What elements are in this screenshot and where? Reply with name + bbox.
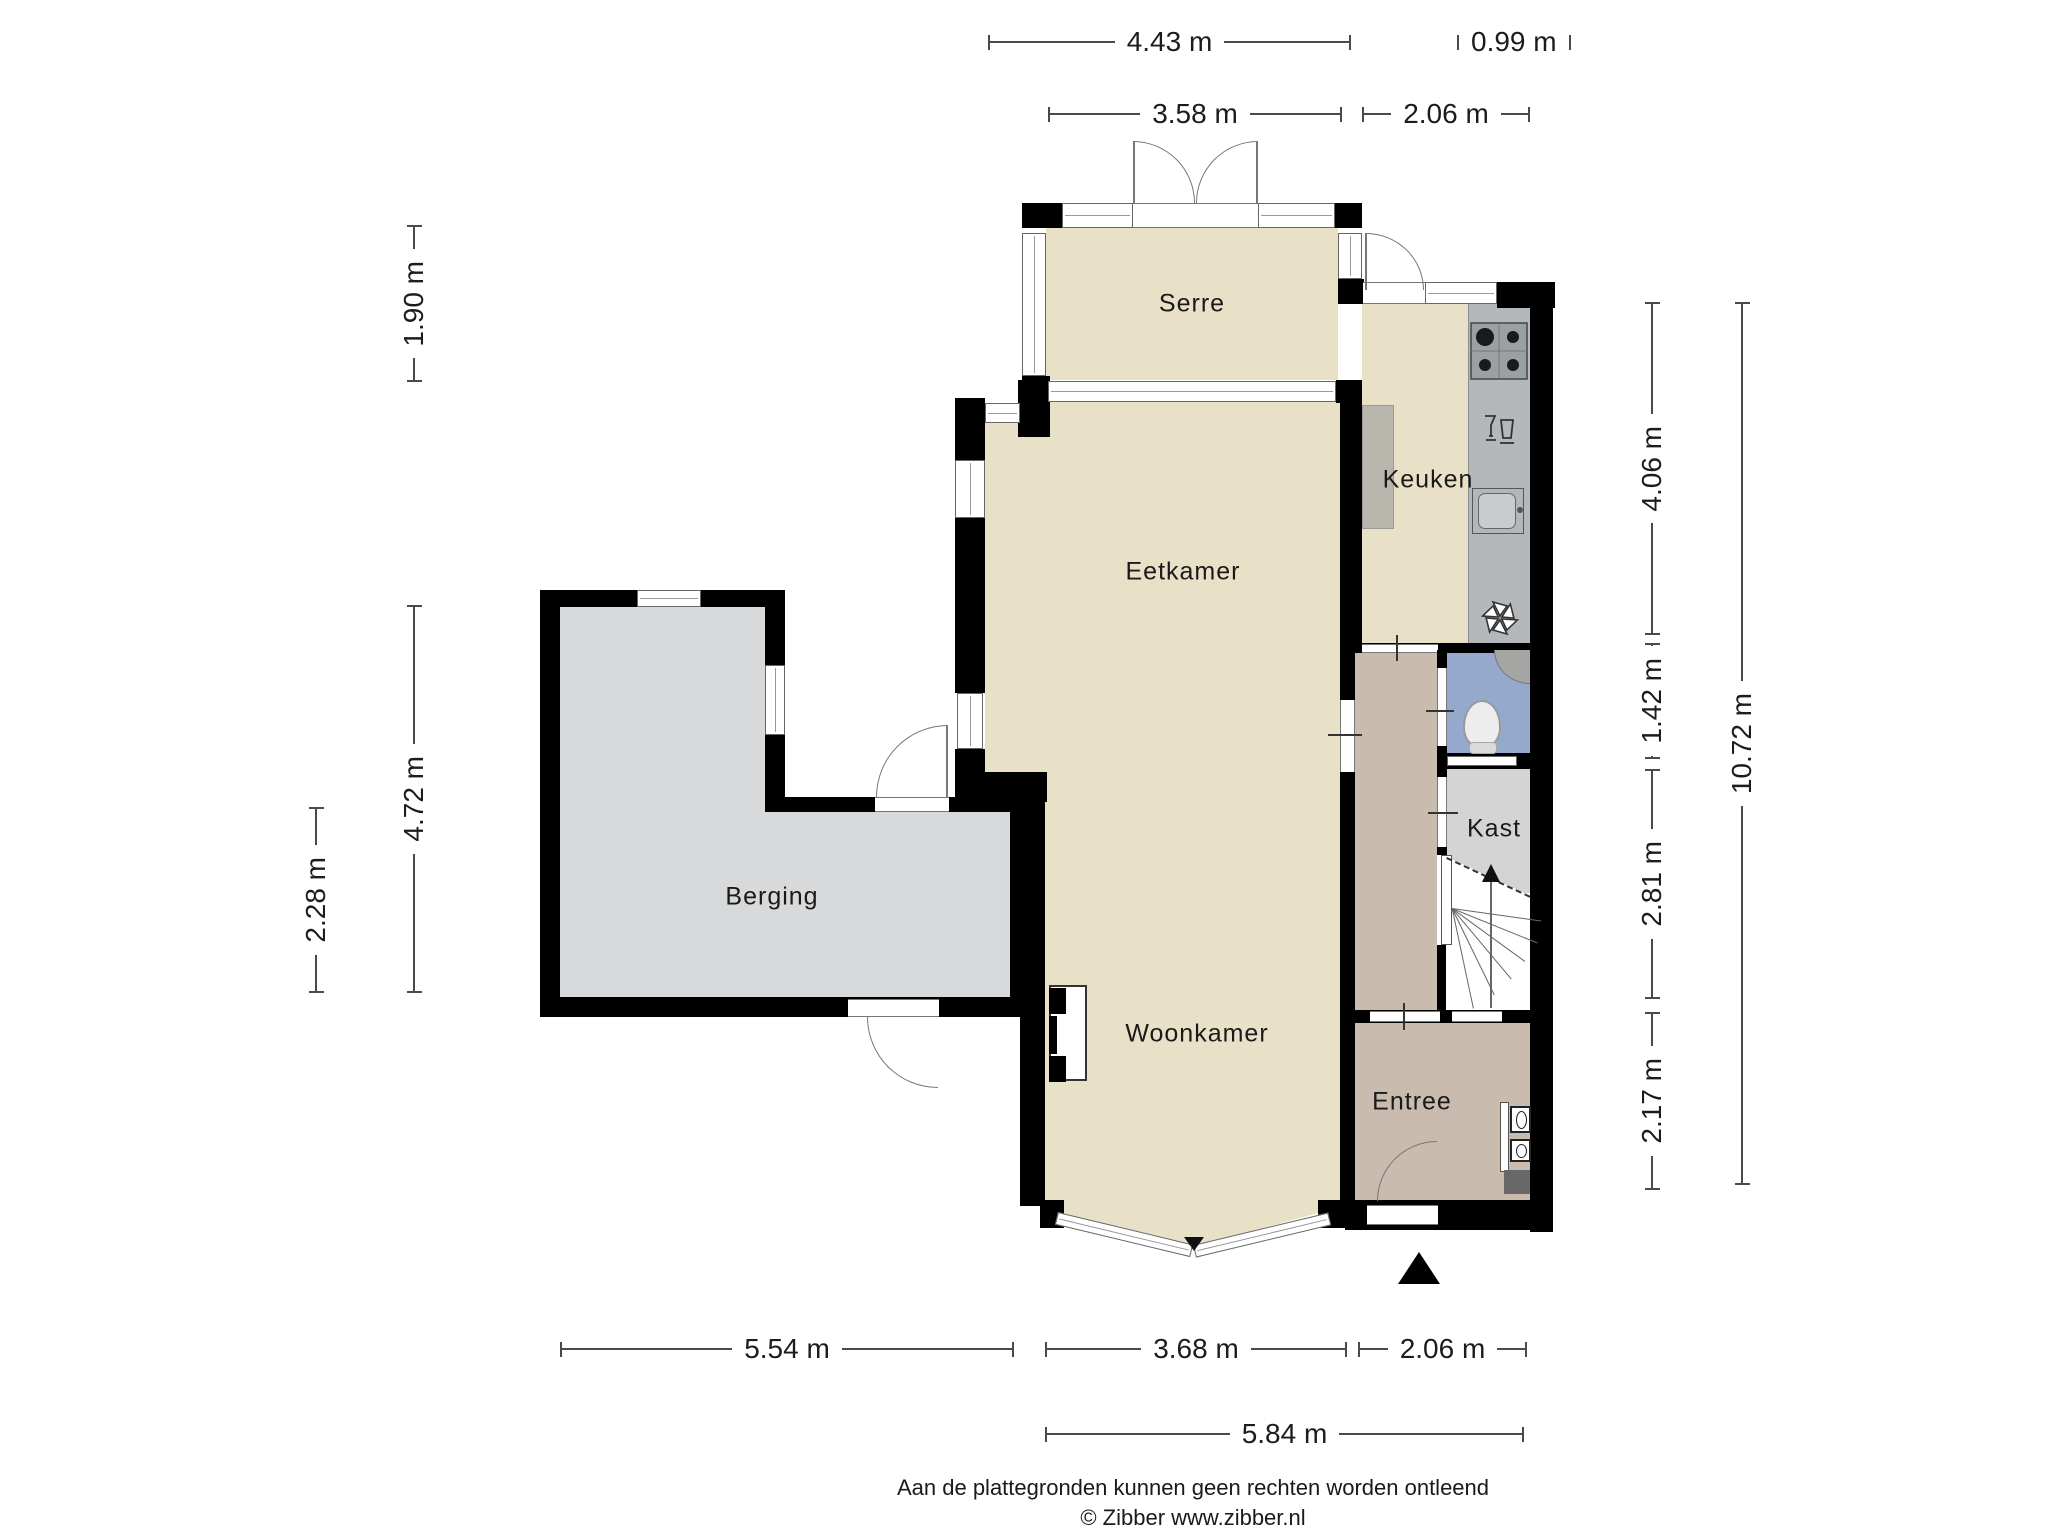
gas-meter-icon — [1510, 1139, 1531, 1162]
room-floor-woonkamer — [1045, 772, 1340, 1212]
wall — [955, 518, 985, 693]
dimension-4-43: 4.43 m — [988, 26, 1351, 58]
bay-junction-mark — [1184, 1237, 1204, 1251]
window — [1425, 282, 1497, 304]
room-floor-eetkamer — [985, 423, 1340, 774]
door-opening — [1370, 1011, 1440, 1022]
copyright-text: © Zibber www.zibber.nl — [893, 1503, 1493, 1533]
room-label-eetkamer: Eetkamer — [1126, 558, 1241, 587]
disclaimer-text: Aan de plattegronden kunnen geen rechten… — [893, 1473, 1493, 1503]
opening-mark — [1403, 1003, 1405, 1030]
dimension-5-84: 5.84 m — [1045, 1418, 1524, 1450]
room-label-kast: Kast — [1467, 815, 1521, 844]
wall — [1530, 282, 1553, 1232]
dimension-5-54: 5.54 m — [560, 1333, 1014, 1365]
door-opening — [875, 797, 949, 812]
fireplace-chimney — [1049, 1056, 1066, 1082]
stair-stringer — [1441, 855, 1452, 945]
opening-mark — [1426, 710, 1454, 712]
opening-mark — [1396, 635, 1398, 661]
door-opening — [1133, 203, 1258, 228]
dimension-2-28: 2.28 m — [300, 807, 332, 993]
wall — [1338, 279, 1364, 304]
dimension-4-72: 4.72 m — [398, 605, 430, 993]
dishwasher-icon — [1481, 412, 1517, 448]
opening-mark — [1328, 734, 1362, 736]
wall — [1022, 203, 1062, 228]
wall — [1437, 847, 1447, 855]
passage-opening — [1340, 700, 1355, 772]
stove-icon — [1470, 322, 1528, 380]
dimension-1-90: 1.90 m — [398, 225, 430, 382]
wall — [955, 749, 985, 774]
wall — [1335, 203, 1362, 228]
door-leaf — [1365, 233, 1367, 290]
dimension-2-06-bottom: 2.06 m — [1358, 1333, 1527, 1365]
door-leaf — [1133, 141, 1135, 203]
wall — [1437, 650, 1447, 668]
door-swing — [1133, 141, 1195, 203]
wall — [1437, 746, 1447, 753]
meter-niche — [1500, 1102, 1509, 1172]
wall — [1010, 812, 1030, 1017]
wall — [1340, 772, 1355, 1012]
room-floor-hal — [1355, 650, 1437, 1012]
fireplace-chimney — [1049, 988, 1066, 1014]
front-door-opening — [1367, 1205, 1438, 1225]
window — [1258, 203, 1335, 228]
window — [1048, 381, 1336, 402]
toilet-base — [1469, 742, 1497, 754]
window — [637, 590, 701, 607]
window — [985, 403, 1020, 423]
window — [1447, 756, 1517, 766]
room-floor-berging — [560, 607, 765, 997]
opening-mark — [1428, 812, 1458, 814]
wall — [955, 398, 985, 460]
dimension-0-99: 0.99 m — [1457, 26, 1539, 58]
wall — [1437, 945, 1446, 1012]
floor-plan: Serre Keuken Eetkamer Berging Kast Woonk… — [0, 0, 2048, 1536]
door-swing — [1196, 141, 1258, 203]
dimension-2-81: 2.81 m — [1636, 769, 1668, 999]
dimension-2-06-top: 2.06 m — [1362, 98, 1530, 130]
window — [955, 460, 985, 518]
room-label-woonkamer: Woonkamer — [1125, 1020, 1268, 1049]
wall — [1340, 650, 1355, 700]
passage-opening — [1362, 644, 1438, 653]
room-label-serre: Serre — [1159, 290, 1225, 319]
window — [1022, 233, 1046, 376]
fireplace-chimney — [1049, 1016, 1057, 1054]
meter-box — [1504, 1170, 1530, 1194]
entrance-arrow-icon — [1398, 1252, 1440, 1284]
window — [1062, 203, 1133, 228]
window — [765, 665, 785, 735]
stairs-threshold — [1452, 1011, 1502, 1022]
dimension-10-72: 10.72 m — [1726, 302, 1758, 1185]
wall — [540, 590, 560, 1017]
door-opening — [848, 999, 939, 1017]
ventilation-fan-icon — [1480, 598, 1520, 638]
door-swing — [867, 1017, 938, 1088]
wall — [1340, 1012, 1355, 1200]
door-swing — [1366, 233, 1424, 290]
room-label-entree: Entree — [1372, 1088, 1452, 1117]
room-label-keuken: Keuken — [1383, 466, 1474, 495]
door-opening — [1437, 668, 1447, 746]
window — [1338, 233, 1362, 279]
room-floor-eetkamer — [1018, 402, 1340, 425]
wall — [1437, 769, 1447, 777]
wall — [540, 997, 1030, 1017]
room-label-berging: Berging — [725, 883, 818, 912]
stairs-direction-arrow-icon — [1482, 864, 1500, 882]
door-leaf — [1256, 141, 1258, 203]
dimension-2-17: 2.17 m — [1636, 1012, 1668, 1190]
electricity-meter-icon — [1510, 1106, 1531, 1133]
wall — [1018, 380, 1048, 437]
door-leaf — [946, 725, 948, 797]
dimension-1-42: 1.42 m — [1636, 643, 1668, 759]
dimension-3-68: 3.68 m — [1045, 1333, 1347, 1365]
dimension-3-58: 3.58 m — [1048, 98, 1342, 130]
wall — [1340, 380, 1362, 643]
window — [957, 693, 983, 749]
footer: Aan de plattegronden kunnen geen rechten… — [893, 1473, 1493, 1532]
stair-step — [1490, 874, 1492, 1008]
toilet-icon — [1463, 700, 1501, 748]
door-swing — [876, 725, 948, 797]
dimension-4-06: 4.06 m — [1636, 302, 1668, 635]
sink-icon — [1472, 488, 1524, 534]
